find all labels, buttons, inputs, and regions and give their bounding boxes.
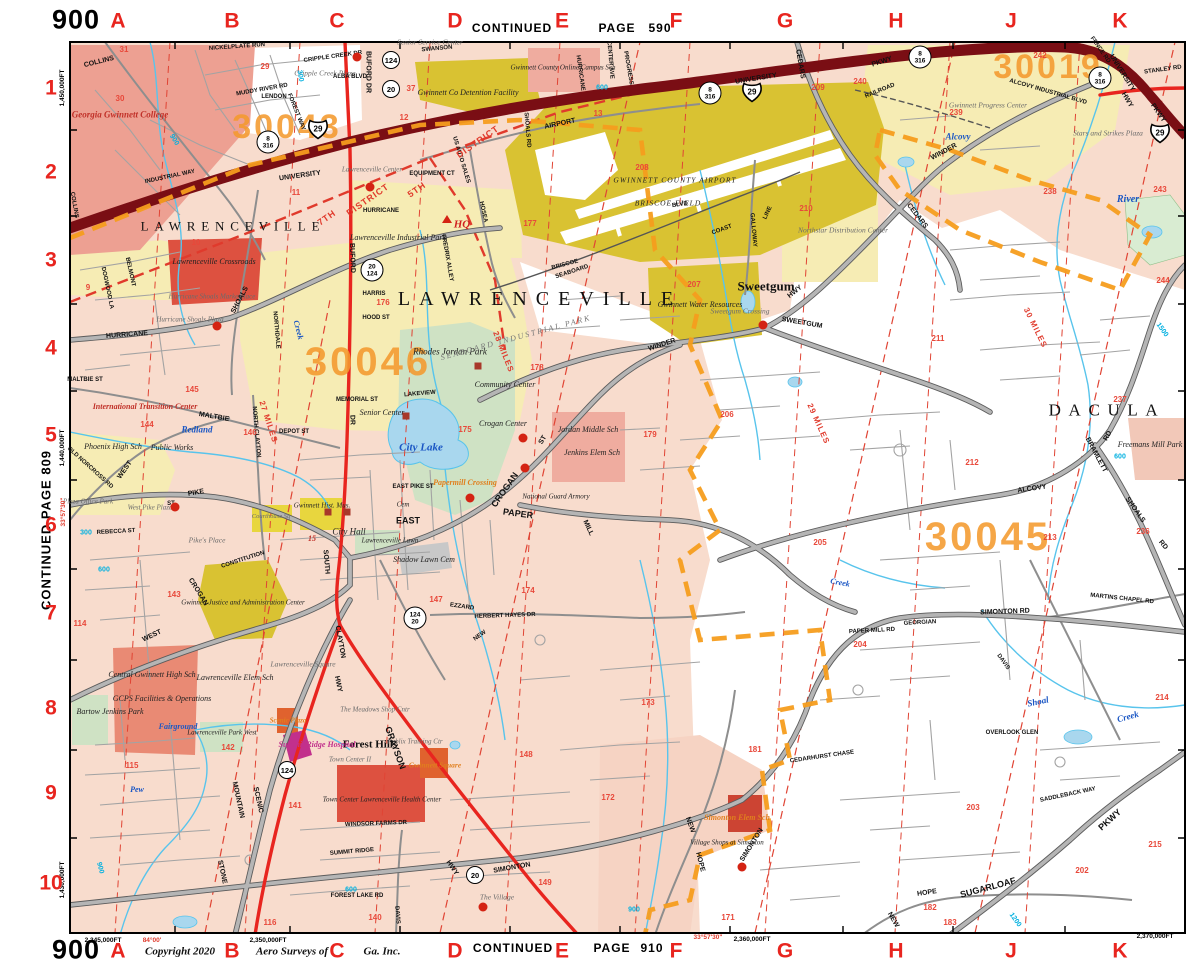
map-canvas[interactable] bbox=[0, 0, 1200, 978]
atlas-page: 900 900 CONTINUED PAGE 590 CONTINUED PAG… bbox=[0, 0, 1200, 978]
